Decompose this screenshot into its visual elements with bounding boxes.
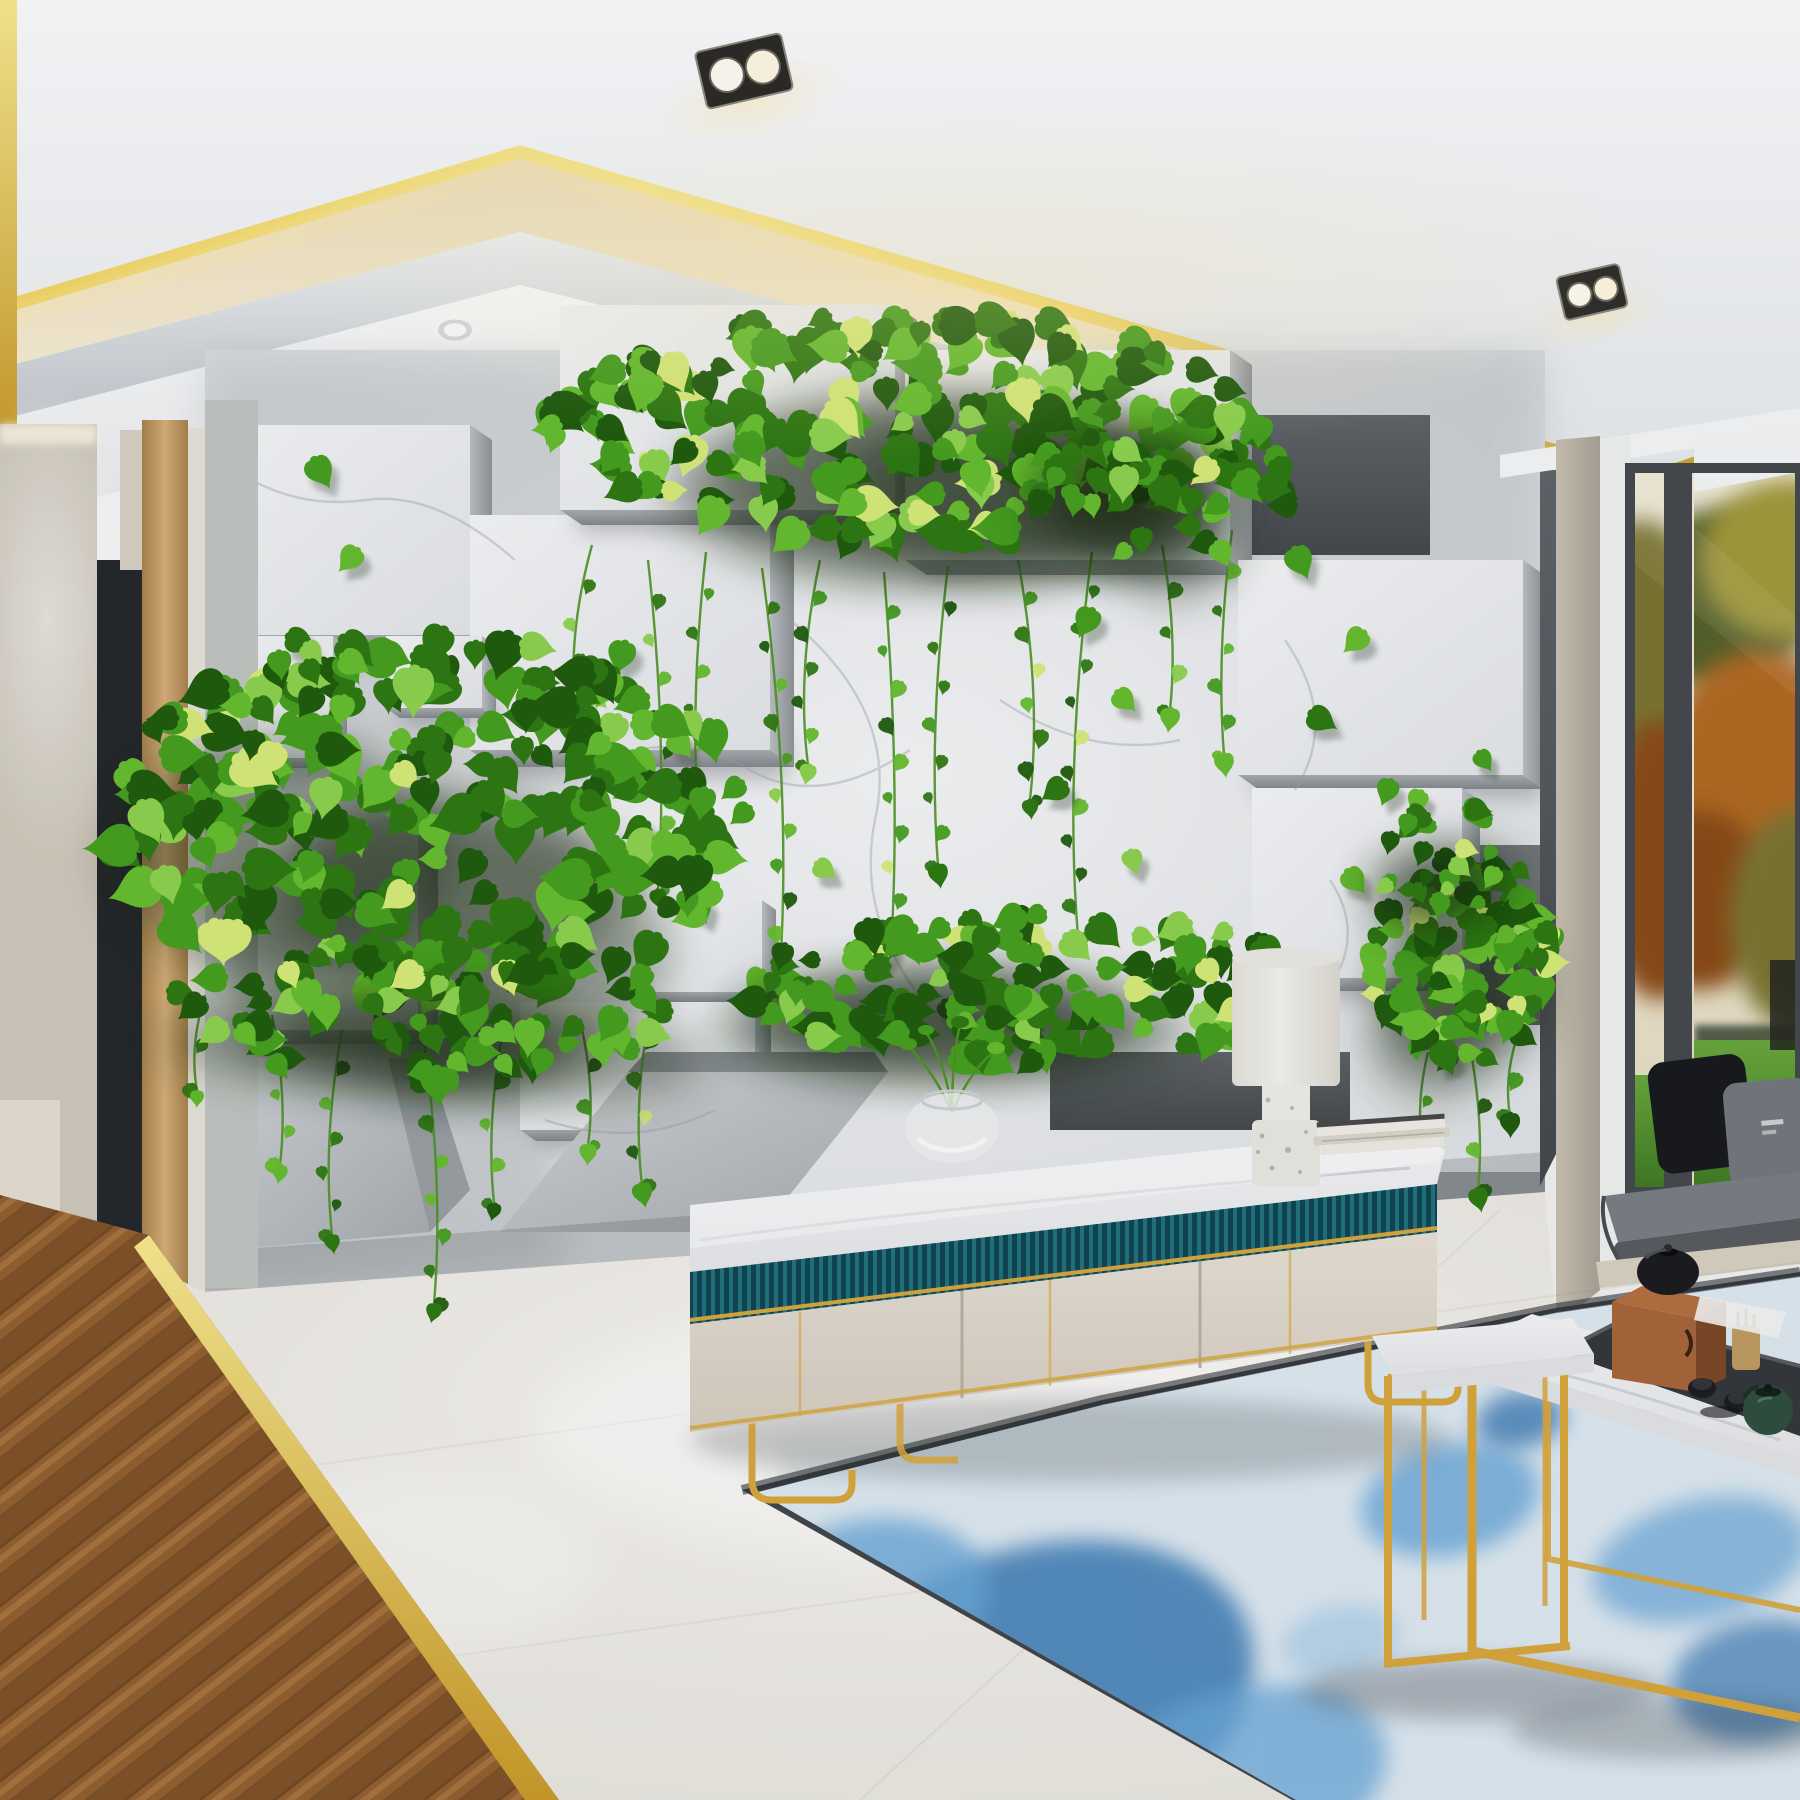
- living-room-render: [0, 0, 1800, 1800]
- ambient-light: [0, 0, 1800, 1800]
- scene-canvas: [0, 0, 1800, 1800]
